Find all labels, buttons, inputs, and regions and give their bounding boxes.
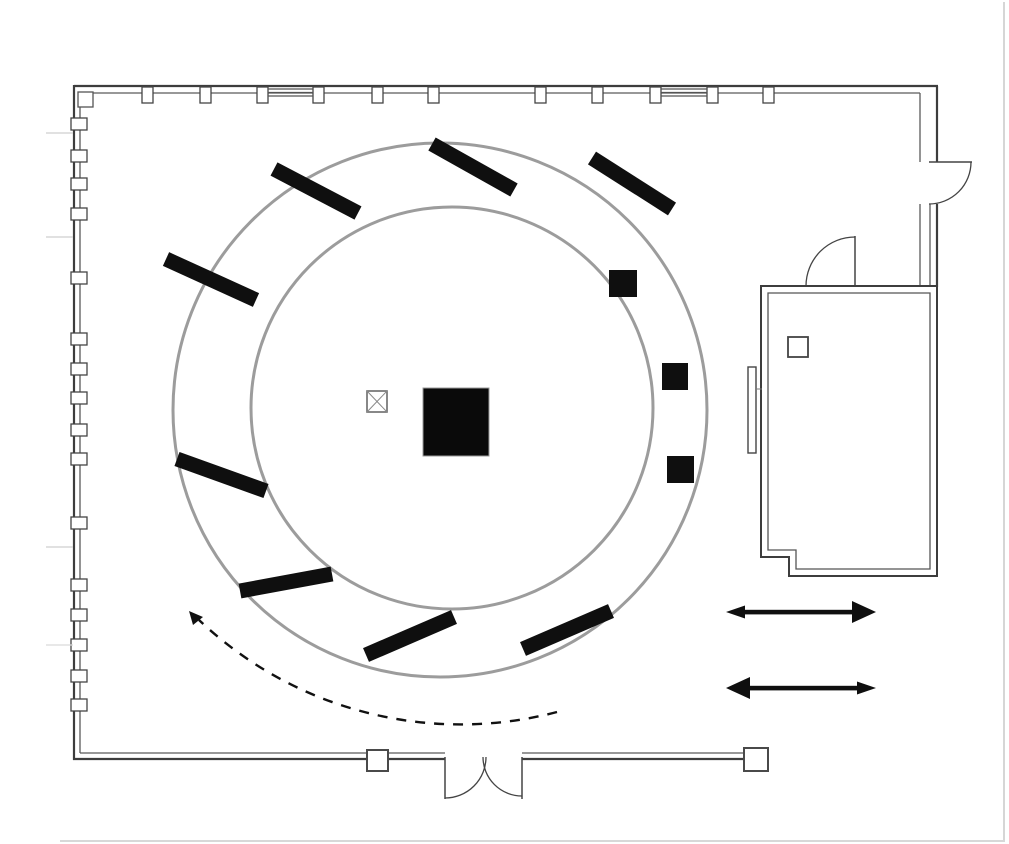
top-wall-stud-3 bbox=[257, 87, 268, 103]
movement-arrow-2-shaft bbox=[747, 686, 858, 691]
movement-arrow-1-head-left bbox=[726, 606, 745, 619]
ring-pedestal-1 bbox=[609, 270, 637, 297]
radial-panel-7 bbox=[366, 617, 454, 655]
wall-post-square-1 bbox=[367, 750, 388, 771]
top-wall-stud-10 bbox=[707, 87, 718, 103]
top-wall-stud-8 bbox=[592, 87, 603, 103]
side-room-square bbox=[788, 337, 808, 357]
top-wall-stud-5 bbox=[372, 87, 383, 103]
left-wall-stud-13 bbox=[71, 609, 87, 621]
left-wall-stud-12 bbox=[71, 579, 87, 591]
top-wall-stud-7 bbox=[535, 87, 546, 103]
movement-arrow-1-shaft bbox=[743, 610, 854, 615]
radial-panel-4 bbox=[166, 259, 256, 300]
left-wall-stud-2 bbox=[71, 150, 87, 162]
left-wall-stud-10 bbox=[71, 453, 87, 465]
side-room-panel bbox=[748, 367, 756, 453]
top-wall-stud-4 bbox=[313, 87, 324, 103]
left-wall-stud-8 bbox=[71, 392, 87, 404]
radial-panel-6 bbox=[240, 574, 332, 591]
floor-plan-page bbox=[0, 0, 1009, 844]
central-plinth bbox=[423, 388, 489, 456]
circulation-dashed-arc bbox=[199, 620, 557, 724]
top-wall-stud-1 bbox=[142, 87, 153, 103]
top-wall-stud-9 bbox=[650, 87, 661, 103]
door-right-swing-arc bbox=[929, 162, 971, 204]
left-wall-stud-7 bbox=[71, 363, 87, 375]
door-sideroom-swing-arc bbox=[806, 237, 855, 286]
radial-panel-3 bbox=[592, 158, 672, 209]
side-room-outer-wall bbox=[761, 286, 937, 576]
top-wall-stud-2 bbox=[200, 87, 211, 103]
left-wall-stud-5 bbox=[71, 272, 87, 284]
floor-plan-drawing bbox=[0, 0, 1009, 844]
movement-arrow-2-head-left bbox=[726, 677, 750, 699]
left-wall-stud-1 bbox=[71, 118, 87, 130]
movement-arrow-1-head-right bbox=[852, 601, 876, 623]
left-wall-stud-4 bbox=[71, 208, 87, 220]
left-wall-stud-14 bbox=[71, 639, 87, 651]
top-wall-stud-11 bbox=[763, 87, 774, 103]
top-wall-stud-6 bbox=[428, 87, 439, 103]
left-wall-stud-15 bbox=[71, 670, 87, 682]
left-wall-stud-9 bbox=[71, 424, 87, 436]
double-door-left-swing-arc bbox=[445, 757, 486, 798]
wall-post-square-2 bbox=[744, 748, 768, 771]
ring-pedestal-3 bbox=[667, 456, 694, 483]
movement-arrow-2-head-right bbox=[857, 682, 876, 695]
double-door-right-swing-arc bbox=[483, 757, 522, 796]
left-wall-stud-16 bbox=[71, 699, 87, 711]
corner-detail bbox=[78, 92, 93, 107]
ring-pedestal-2 bbox=[662, 363, 688, 390]
left-wall-stud-3 bbox=[71, 178, 87, 190]
radial-panel-5 bbox=[177, 459, 266, 491]
left-wall-stud-6 bbox=[71, 333, 87, 345]
left-wall-stud-11 bbox=[71, 517, 87, 529]
